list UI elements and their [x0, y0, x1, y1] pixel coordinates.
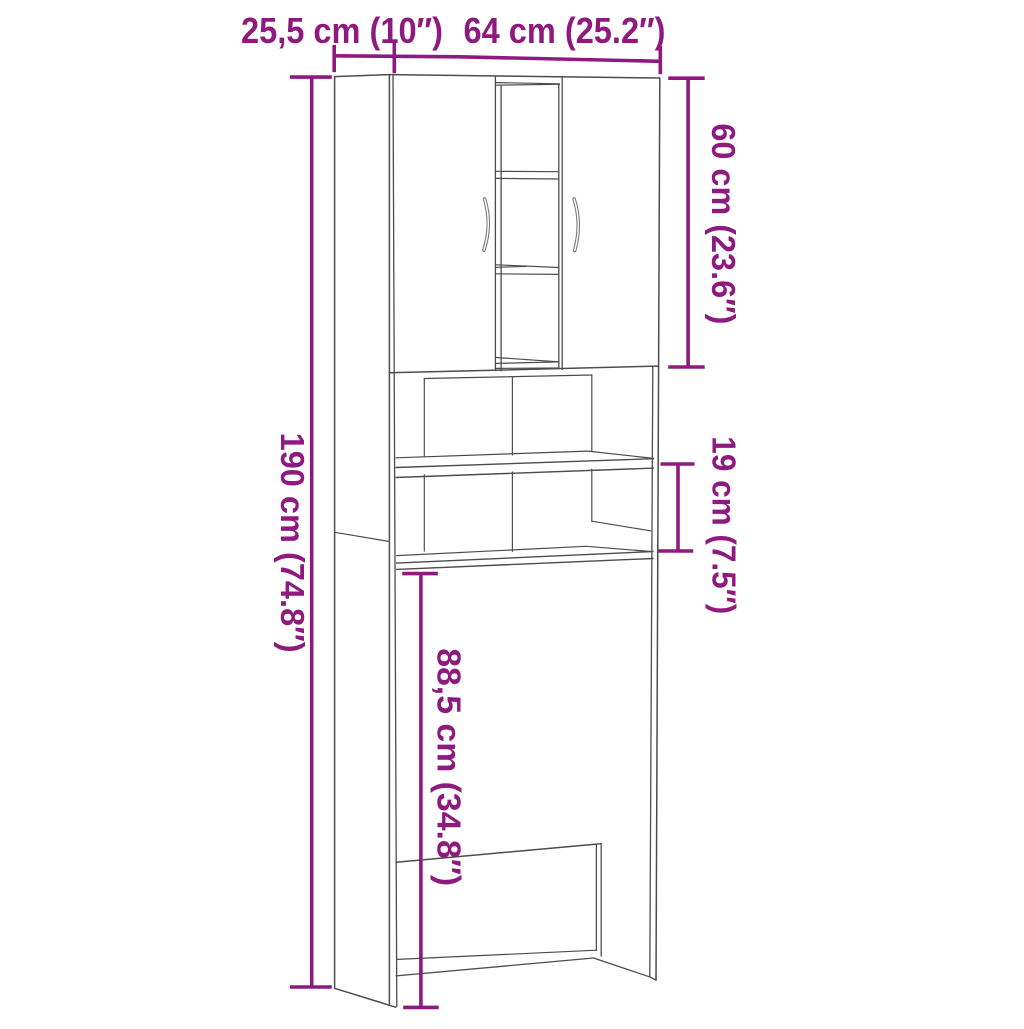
svg-text:190 cm (74.8″): 190 cm (74.8″): [274, 433, 311, 653]
svg-text:88,5 cm (34.8″): 88,5 cm (34.8″): [431, 648, 468, 886]
svg-text:19 cm (7.5″): 19 cm (7.5″): [705, 436, 742, 614]
svg-text:25,5 cm (10″): 25,5 cm (10″): [241, 10, 443, 51]
svg-text:60 cm (23.6″): 60 cm (23.6″): [705, 123, 742, 324]
svg-text:64 cm (25.2″): 64 cm (25.2″): [464, 10, 666, 51]
